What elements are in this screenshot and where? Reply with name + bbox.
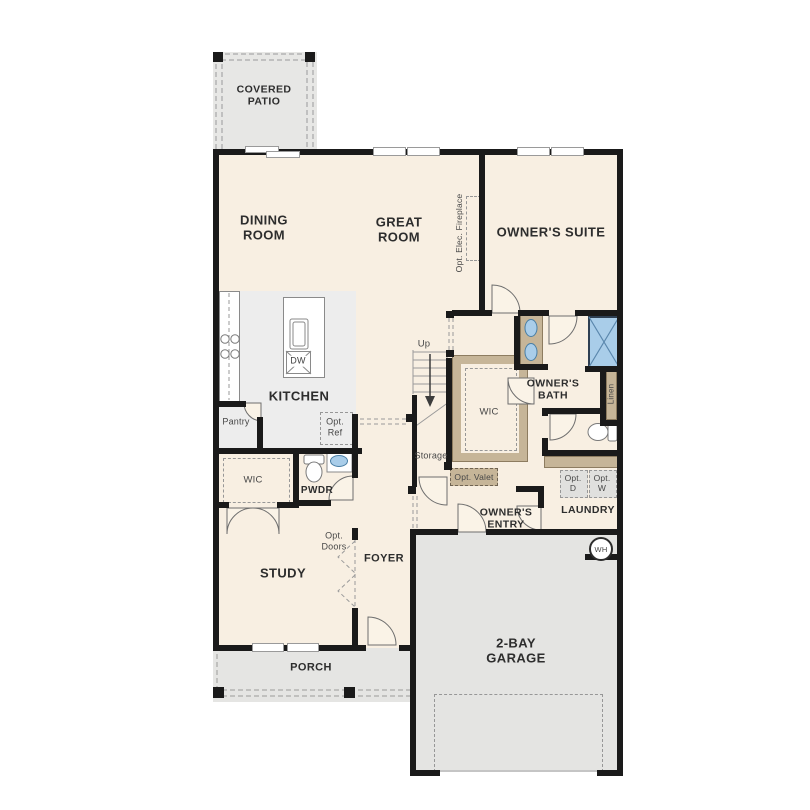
linen-label: Linen <box>606 384 615 405</box>
wall-linen-left <box>600 370 606 426</box>
owners-entry-label: OWNER'S ENTRY <box>468 507 544 532</box>
cooktop-burner <box>231 335 239 343</box>
wc-toilet-bowl <box>588 424 608 441</box>
door-water-closet <box>550 414 576 440</box>
dining-room-label: DINING ROOM <box>219 213 309 244</box>
opt-dryer-label: Opt. D <box>561 473 585 493</box>
wall-wc-bottom <box>542 450 623 456</box>
wall-kitchen-bottom <box>213 448 362 454</box>
up-label: Up <box>418 338 431 349</box>
wall-garage-bottom-right <box>597 770 623 776</box>
wall-garage-left <box>410 529 416 776</box>
water-heater-label: WH <box>595 545 608 554</box>
opt-doors-label: Opt. Doors <box>314 530 354 551</box>
wall-wc-left-a <box>542 408 548 416</box>
pantry-label: Pantry <box>222 417 249 428</box>
covered-patio-label: COVERED PATIO <box>224 84 304 109</box>
stair-break-line <box>413 402 449 428</box>
door-suite-to-bath <box>549 316 577 344</box>
wall-suite-bottom-b <box>518 310 549 316</box>
post-foyer-entry <box>408 486 416 494</box>
wall-study-wic-a <box>213 502 229 508</box>
wall-pwdr-bottom <box>296 500 331 506</box>
door-front-entry <box>368 617 396 645</box>
opt-fireplace-label: Opt. Elec. Fireplace <box>454 194 464 273</box>
vanity-sink <box>525 344 537 361</box>
wall-pantry-top <box>213 401 246 407</box>
laundry-label: LAUNDRY <box>561 504 615 516</box>
wall-vanity-left <box>514 316 520 370</box>
wall-garage-top-a <box>410 529 458 535</box>
post-porch-left <box>213 687 224 698</box>
wic-opening-dashes <box>449 318 453 350</box>
post-valet <box>444 462 452 470</box>
pwdr-label: PWDR <box>301 485 333 497</box>
window-study-2 <box>287 643 319 652</box>
wall-laundry-div-v <box>538 492 544 508</box>
pwdr-toilet-bowl <box>306 462 322 482</box>
study-wic-label: WIC <box>243 474 262 485</box>
stair-arrow-icon <box>425 396 435 407</box>
hall-opening-dashes <box>360 419 406 424</box>
island-sink-basin <box>293 322 305 346</box>
patio-slider-panel-2 <box>266 151 300 158</box>
cooktop-burner <box>221 350 229 358</box>
window-great-room-1 <box>373 147 406 156</box>
wall-linen-bottom <box>606 420 623 426</box>
wall-foyer-left <box>352 414 358 478</box>
post-patio-left <box>213 52 223 62</box>
post-wic-entry-a <box>446 311 454 318</box>
foyer-label: FOYER <box>364 553 404 566</box>
window-study-1 <box>252 643 284 652</box>
cooktop-burner <box>231 350 239 358</box>
opt-ref-label: Opt. Ref <box>320 416 350 437</box>
opt-door-leaf-2 <box>338 575 355 607</box>
post-porch-right <box>344 687 355 698</box>
storage-label: Storage <box>415 451 448 462</box>
door-storage <box>419 477 447 505</box>
wall-stair-left <box>412 395 417 487</box>
window-great-room-2 <box>407 147 440 156</box>
window-owners-suite-1 <box>517 147 550 156</box>
post-hall-arch <box>406 414 414 422</box>
door-study-wic-left <box>227 508 253 534</box>
door-owners-suite <box>492 285 520 313</box>
floor-plan: WH COVERED PATIO DINING ROOM GREAT ROOM … <box>0 0 810 810</box>
owners-suite-label: OWNER'S SUITE <box>496 224 606 239</box>
owners-bath-label: OWNER'S BATH <box>517 378 589 403</box>
wall-wc-top <box>548 408 602 414</box>
wall-suite-bottom-a <box>452 310 492 316</box>
foyer-opening-dashes <box>413 496 417 528</box>
post-wic-entry-b <box>446 350 454 357</box>
water-heater: WH <box>589 537 613 561</box>
porch-label: PORCH <box>290 662 332 675</box>
shower-x <box>589 317 619 367</box>
cooktop-burner <box>221 335 229 343</box>
wall-suite-divider <box>479 152 485 316</box>
door-study-wic-right <box>253 508 279 534</box>
wall-vanity-bottom <box>514 364 548 370</box>
wall-pwdr-left <box>293 448 299 506</box>
dishwasher-label: DW <box>289 356 306 367</box>
garage-label: 2-BAY GARAGE <box>466 636 566 667</box>
pwdr-sink <box>331 456 348 467</box>
study-label: STUDY <box>260 565 306 580</box>
opt-valet-label: Opt. Valet <box>454 472 493 482</box>
wall-suite-bottom-c <box>575 310 623 316</box>
window-owners-suite-2 <box>551 147 584 156</box>
vanity-sink <box>525 320 537 337</box>
opt-washer-label: Opt. W <box>590 473 614 493</box>
post-patio-right <box>305 52 315 62</box>
great-room-label: GREAT ROOM <box>354 215 444 246</box>
wall-study-right-b <box>352 608 358 651</box>
owners-wic-label: WIC <box>479 406 498 417</box>
wall-garage-bottom-left <box>410 770 440 776</box>
wall-pantry-right <box>257 417 263 448</box>
wall-exterior-right <box>617 149 623 776</box>
kitchen-label: KITCHEN <box>254 388 344 403</box>
plan-detail-overlay <box>0 0 810 810</box>
